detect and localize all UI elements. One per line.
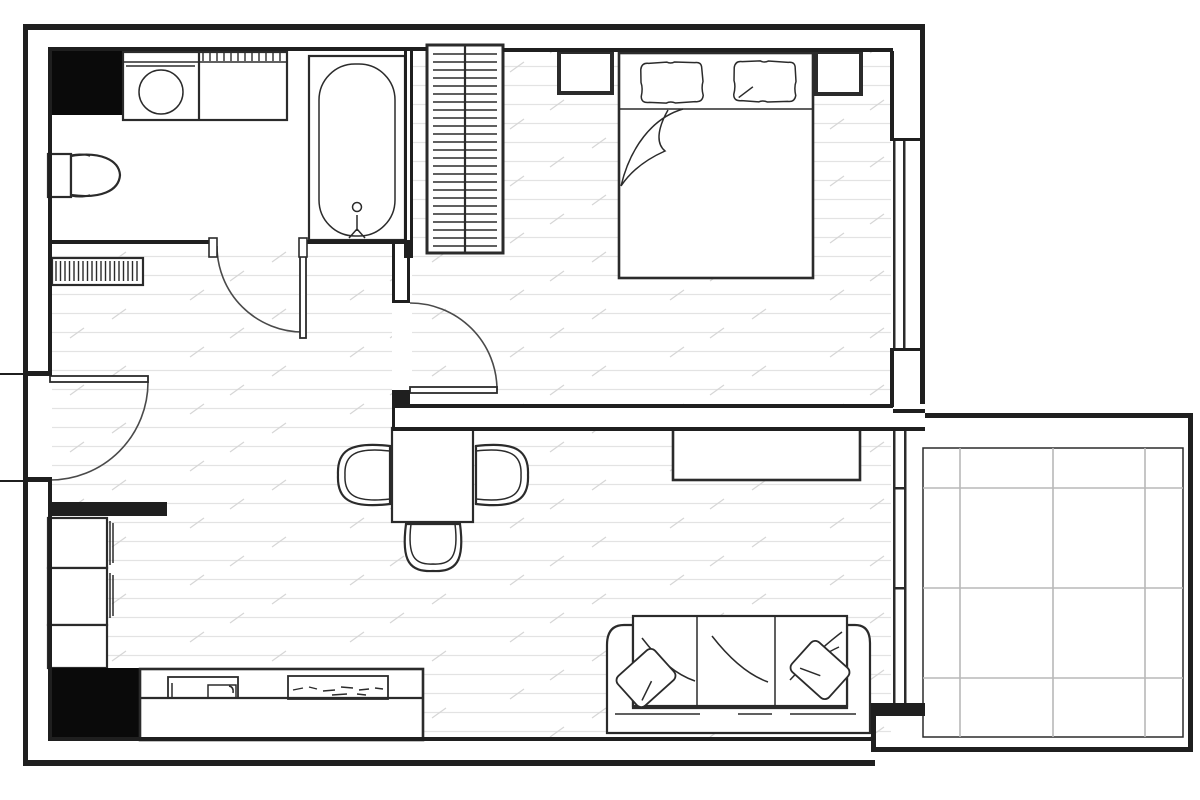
balcony-window-rail-1	[893, 487, 906, 490]
wall-left-inner-upper	[48, 47, 52, 373]
right-wall-inner-upper	[890, 51, 894, 141]
bedroom-window-glass-a	[893, 141, 896, 348]
balcony	[871, 413, 1193, 752]
sideboard-console	[673, 427, 860, 480]
wall-left-outer	[23, 24, 28, 765]
door-jamb-block-right	[299, 238, 307, 257]
bathroom	[48, 48, 405, 240]
toilet	[48, 154, 120, 197]
chair-bottom	[405, 524, 462, 571]
right-wall-inner-mid	[890, 351, 894, 407]
wall-right-outer	[920, 28, 925, 418]
mid-wall-end-cap	[392, 404, 395, 431]
bathroom-east-wall-b	[410, 47, 413, 258]
se-pier-side	[871, 716, 876, 752]
balcony-tile-grid	[923, 448, 1183, 737]
sofa	[607, 616, 870, 733]
wall-bottom-inner	[48, 737, 875, 741]
mid-wall-top-corner	[893, 409, 925, 413]
balcony-window-rail-2	[893, 587, 906, 590]
bathtub	[309, 56, 405, 240]
mid-wall-top-line	[392, 404, 893, 408]
bedroom-window-sill-bottom	[890, 348, 922, 351]
bathroom-south-wall-left	[48, 240, 211, 244]
bedroom-door-leaf	[410, 387, 497, 393]
kitchen-counter	[140, 669, 423, 740]
washer-counter-unit	[123, 52, 287, 120]
toilet-bowl	[71, 155, 120, 196]
bedroom	[427, 45, 861, 278]
tall-cabinet-3	[48, 625, 107, 668]
context-line-top	[0, 373, 23, 375]
bathroom-east-wall-a	[404, 47, 407, 258]
hallway	[52, 258, 143, 285]
balcony-wall-right	[1188, 413, 1193, 752]
wall-bottom-outer	[23, 760, 875, 766]
double-bed	[619, 53, 813, 278]
wall-left-inner-lower	[48, 482, 52, 738]
hall-bedroom-wall-a	[392, 243, 395, 303]
chair-left	[338, 445, 390, 505]
bathroom-south-wall-right	[305, 240, 413, 244]
balcony-wall-bottom	[871, 747, 1193, 752]
tall-cabinet-2	[48, 568, 107, 625]
chair-right	[476, 445, 528, 505]
wall-top-inner-right	[503, 48, 893, 52]
tall-cabinet-1	[48, 518, 107, 568]
wall-top-inner-left	[48, 47, 427, 51]
kitchen-stub-wall	[48, 502, 167, 516]
context-line-bottom	[0, 480, 23, 482]
wall-top-outer	[23, 24, 925, 30]
balcony-wall-top	[921, 413, 1193, 418]
front-door-jamb-top	[23, 371, 52, 376]
balcony-window-glass-a	[893, 431, 896, 705]
mid-wall-fill	[392, 404, 925, 431]
floor-plan-drawing	[0, 0, 1200, 800]
nightstand-left	[559, 52, 612, 93]
front-door-jamb-bottom	[23, 477, 52, 482]
dining-table	[392, 428, 473, 522]
kitchen-black-block	[48, 668, 140, 738]
hall-bedroom-wall-b	[407, 243, 410, 303]
door-jamb-block-left	[209, 238, 217, 257]
hall-bedroom-wall-cap	[392, 300, 410, 303]
floor-plan-page	[0, 0, 1200, 800]
mid-wall-bottom-line	[392, 427, 925, 431]
bedroom-window-sill-top	[890, 138, 922, 141]
balcony-window-glass-b	[904, 431, 907, 705]
bedroom-window-glass-b	[903, 141, 906, 348]
wardrobe	[427, 45, 503, 253]
se-pier-top	[871, 703, 925, 716]
doormat-grille	[52, 258, 143, 285]
front-door-leaf	[50, 376, 148, 382]
bed-outline	[619, 53, 813, 278]
duct-shaft-block	[50, 48, 122, 115]
nightstand-right	[816, 52, 861, 94]
